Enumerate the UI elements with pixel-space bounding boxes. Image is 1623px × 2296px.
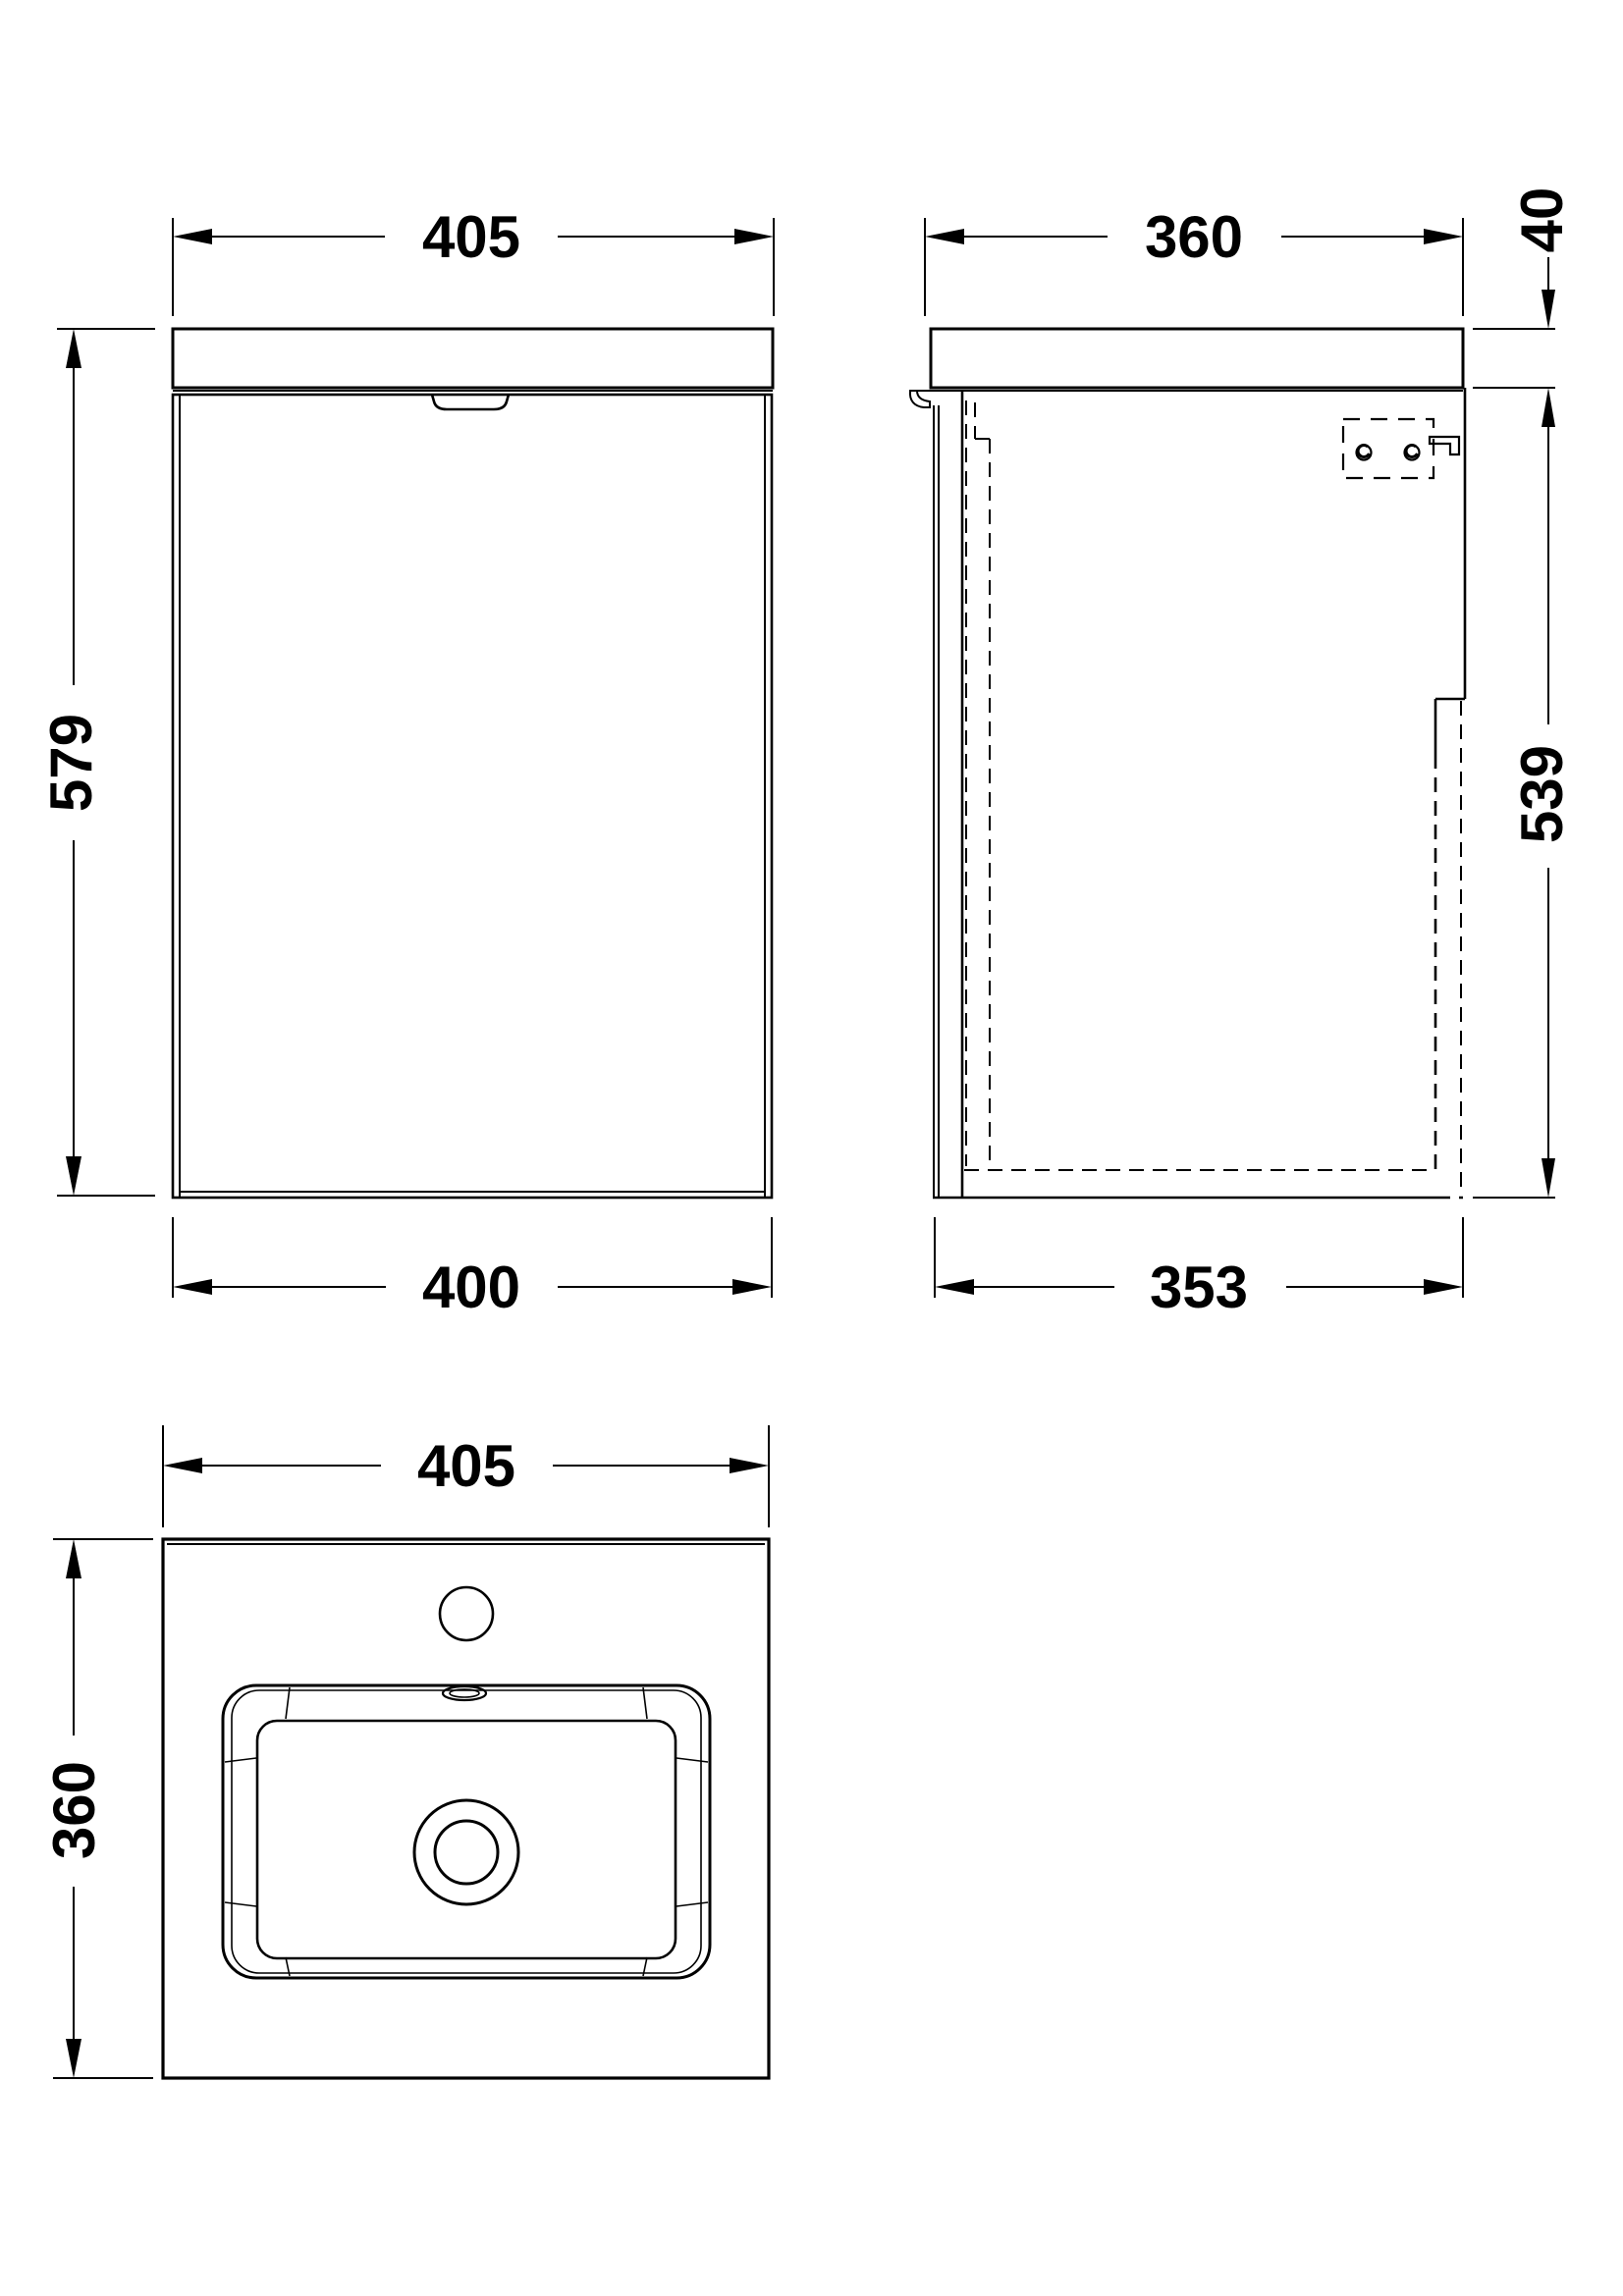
front-width-label: 405 <box>422 204 520 270</box>
front-height-dimension: 579 <box>38 329 155 1196</box>
plan-depth-label: 360 <box>41 1761 107 1859</box>
worktop-thickness-label: 40 <box>1509 187 1575 253</box>
side-door <box>910 391 939 1197</box>
vanity-unit-technical-drawing: 405 579 400 <box>0 0 1623 2296</box>
waste-drain-outer <box>414 1800 518 1904</box>
plan-view: 405 360 <box>41 1425 769 2078</box>
side-height-label: 539 <box>1509 745 1575 843</box>
front-width-dimension: 405 <box>173 204 774 316</box>
front-view: 405 579 400 <box>38 204 774 1320</box>
side-depth-label: 360 <box>1145 204 1243 270</box>
plan-worktop-outline <box>163 1539 769 2078</box>
bowl-rim-inner-line <box>232 1690 701 1973</box>
plan-width-label: 405 <box>417 1433 515 1499</box>
plan-depth-dimension: 360 <box>41 1539 153 2078</box>
front-height-label: 579 <box>38 714 104 812</box>
side-depth-dimension: 360 <box>925 204 1463 316</box>
front-bottom-width-label: 400 <box>422 1255 520 1320</box>
basin-bowl <box>223 1685 710 1978</box>
drawing-canvas: 405 579 400 <box>0 0 1623 2296</box>
front-bottom-width-dimension: 400 <box>173 1217 772 1320</box>
waste-drain-inner <box>435 1821 498 1884</box>
plan-width-dimension: 405 <box>163 1425 769 1527</box>
door-pull-profile <box>910 391 939 407</box>
side-bottom-depth-dimension: 353 <box>935 1217 1463 1320</box>
side-bottom-depth-label: 353 <box>1150 1255 1248 1320</box>
front-worktop <box>173 329 773 388</box>
worktop-thickness-dimension: 40 <box>1473 187 1575 388</box>
bowl-outer-rim <box>223 1685 710 1978</box>
door-handle-recess <box>432 395 509 409</box>
side-back-panel <box>933 388 1465 1198</box>
tap-hole <box>440 1587 493 1640</box>
side-worktop <box>931 329 1463 388</box>
side-view: 360 <box>910 187 1575 1320</box>
wall-bracket <box>1343 419 1459 478</box>
front-cabinet <box>173 395 772 1198</box>
side-height-dimension: 539 <box>1473 388 1575 1198</box>
bowl-inner-edge <box>257 1721 676 1958</box>
